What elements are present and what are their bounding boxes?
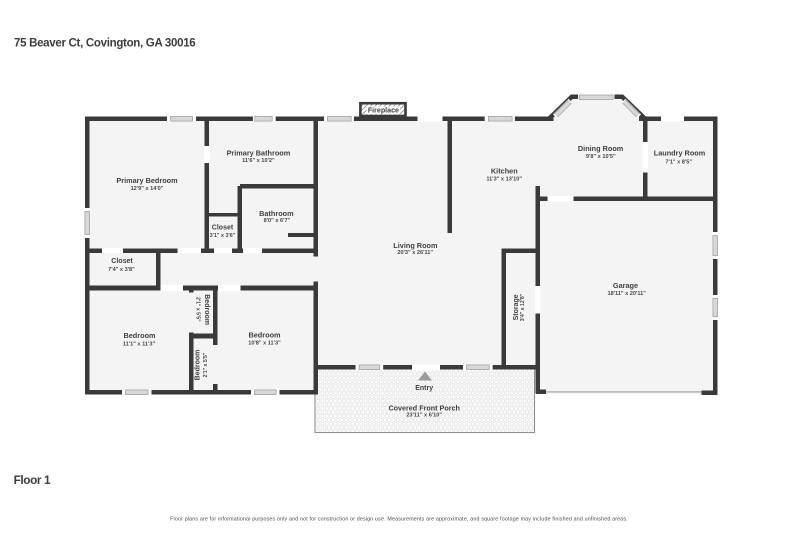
svg-text:Garage: Garage (613, 281, 638, 290)
svg-text:Floor 1: Floor 1 (14, 473, 51, 487)
svg-text:Laundry Room: Laundry Room (654, 149, 706, 158)
svg-text:11'1" x 11'3": 11'1" x 11'3" (123, 342, 156, 348)
svg-text:11'6" x 10'2": 11'6" x 10'2" (242, 158, 275, 164)
svg-text:Bedroom: Bedroom (194, 350, 201, 381)
svg-text:Covered Front Porch: Covered Front Porch (388, 404, 460, 413)
svg-text:Bathroom: Bathroom (259, 209, 294, 218)
svg-text:2'1" x 5'5": 2'1" x 5'5" (203, 352, 209, 377)
svg-text:Primary Bathroom: Primary Bathroom (227, 149, 291, 158)
svg-text:Primary Bedroom: Primary Bedroom (116, 176, 178, 185)
svg-text:7'4" x 3'8": 7'4" x 3'8" (108, 267, 135, 273)
svg-text:Closet: Closet (111, 258, 133, 265)
svg-text:Kitchen: Kitchen (491, 166, 518, 175)
svg-text:Closet: Closet (212, 225, 234, 232)
svg-text:7'1" x 8'5": 7'1" x 8'5" (665, 160, 692, 166)
svg-text:Dining Room: Dining Room (578, 144, 624, 153)
svg-text:10'8" x 11'3": 10'8" x 11'3" (248, 340, 281, 346)
svg-text:Bedroom: Bedroom (203, 294, 210, 325)
svg-text:Floor plans are for informatio: Floor plans are for informational purpos… (170, 517, 628, 523)
svg-text:Fireplace: Fireplace (368, 107, 399, 115)
svg-text:3'1" x 3'6": 3'1" x 3'6" (210, 233, 236, 239)
svg-text:8'0" x 6'7": 8'0" x 6'7" (264, 218, 291, 224)
svg-text:Entry: Entry (415, 385, 433, 392)
svg-text:12'9" x 14'0": 12'9" x 14'0" (131, 186, 164, 192)
svg-text:3'4" x 12'8": 3'4" x 12'8" (520, 293, 526, 321)
svg-text:23'11" x 6'10": 23'11" x 6'10" (406, 413, 442, 419)
svg-text:11'3" x 13'10": 11'3" x 13'10" (486, 177, 522, 183)
svg-text:20'3" x 26'11": 20'3" x 26'11" (397, 250, 433, 256)
svg-text:9'8" x 10'5": 9'8" x 10'5" (586, 154, 616, 160)
svg-text:18'11" x 20'11": 18'11" x 20'11" (607, 291, 646, 297)
svg-text:75 Beaver Ct, Covington, GA 30: 75 Beaver Ct, Covington, GA 30016 (14, 38, 195, 50)
svg-text:Bedroom: Bedroom (248, 331, 281, 340)
svg-text:Bedroom: Bedroom (123, 331, 156, 340)
svg-text:Living Room: Living Room (393, 241, 438, 250)
svg-text:2'1" x 5'5": 2'1" x 5'5" (195, 297, 201, 322)
